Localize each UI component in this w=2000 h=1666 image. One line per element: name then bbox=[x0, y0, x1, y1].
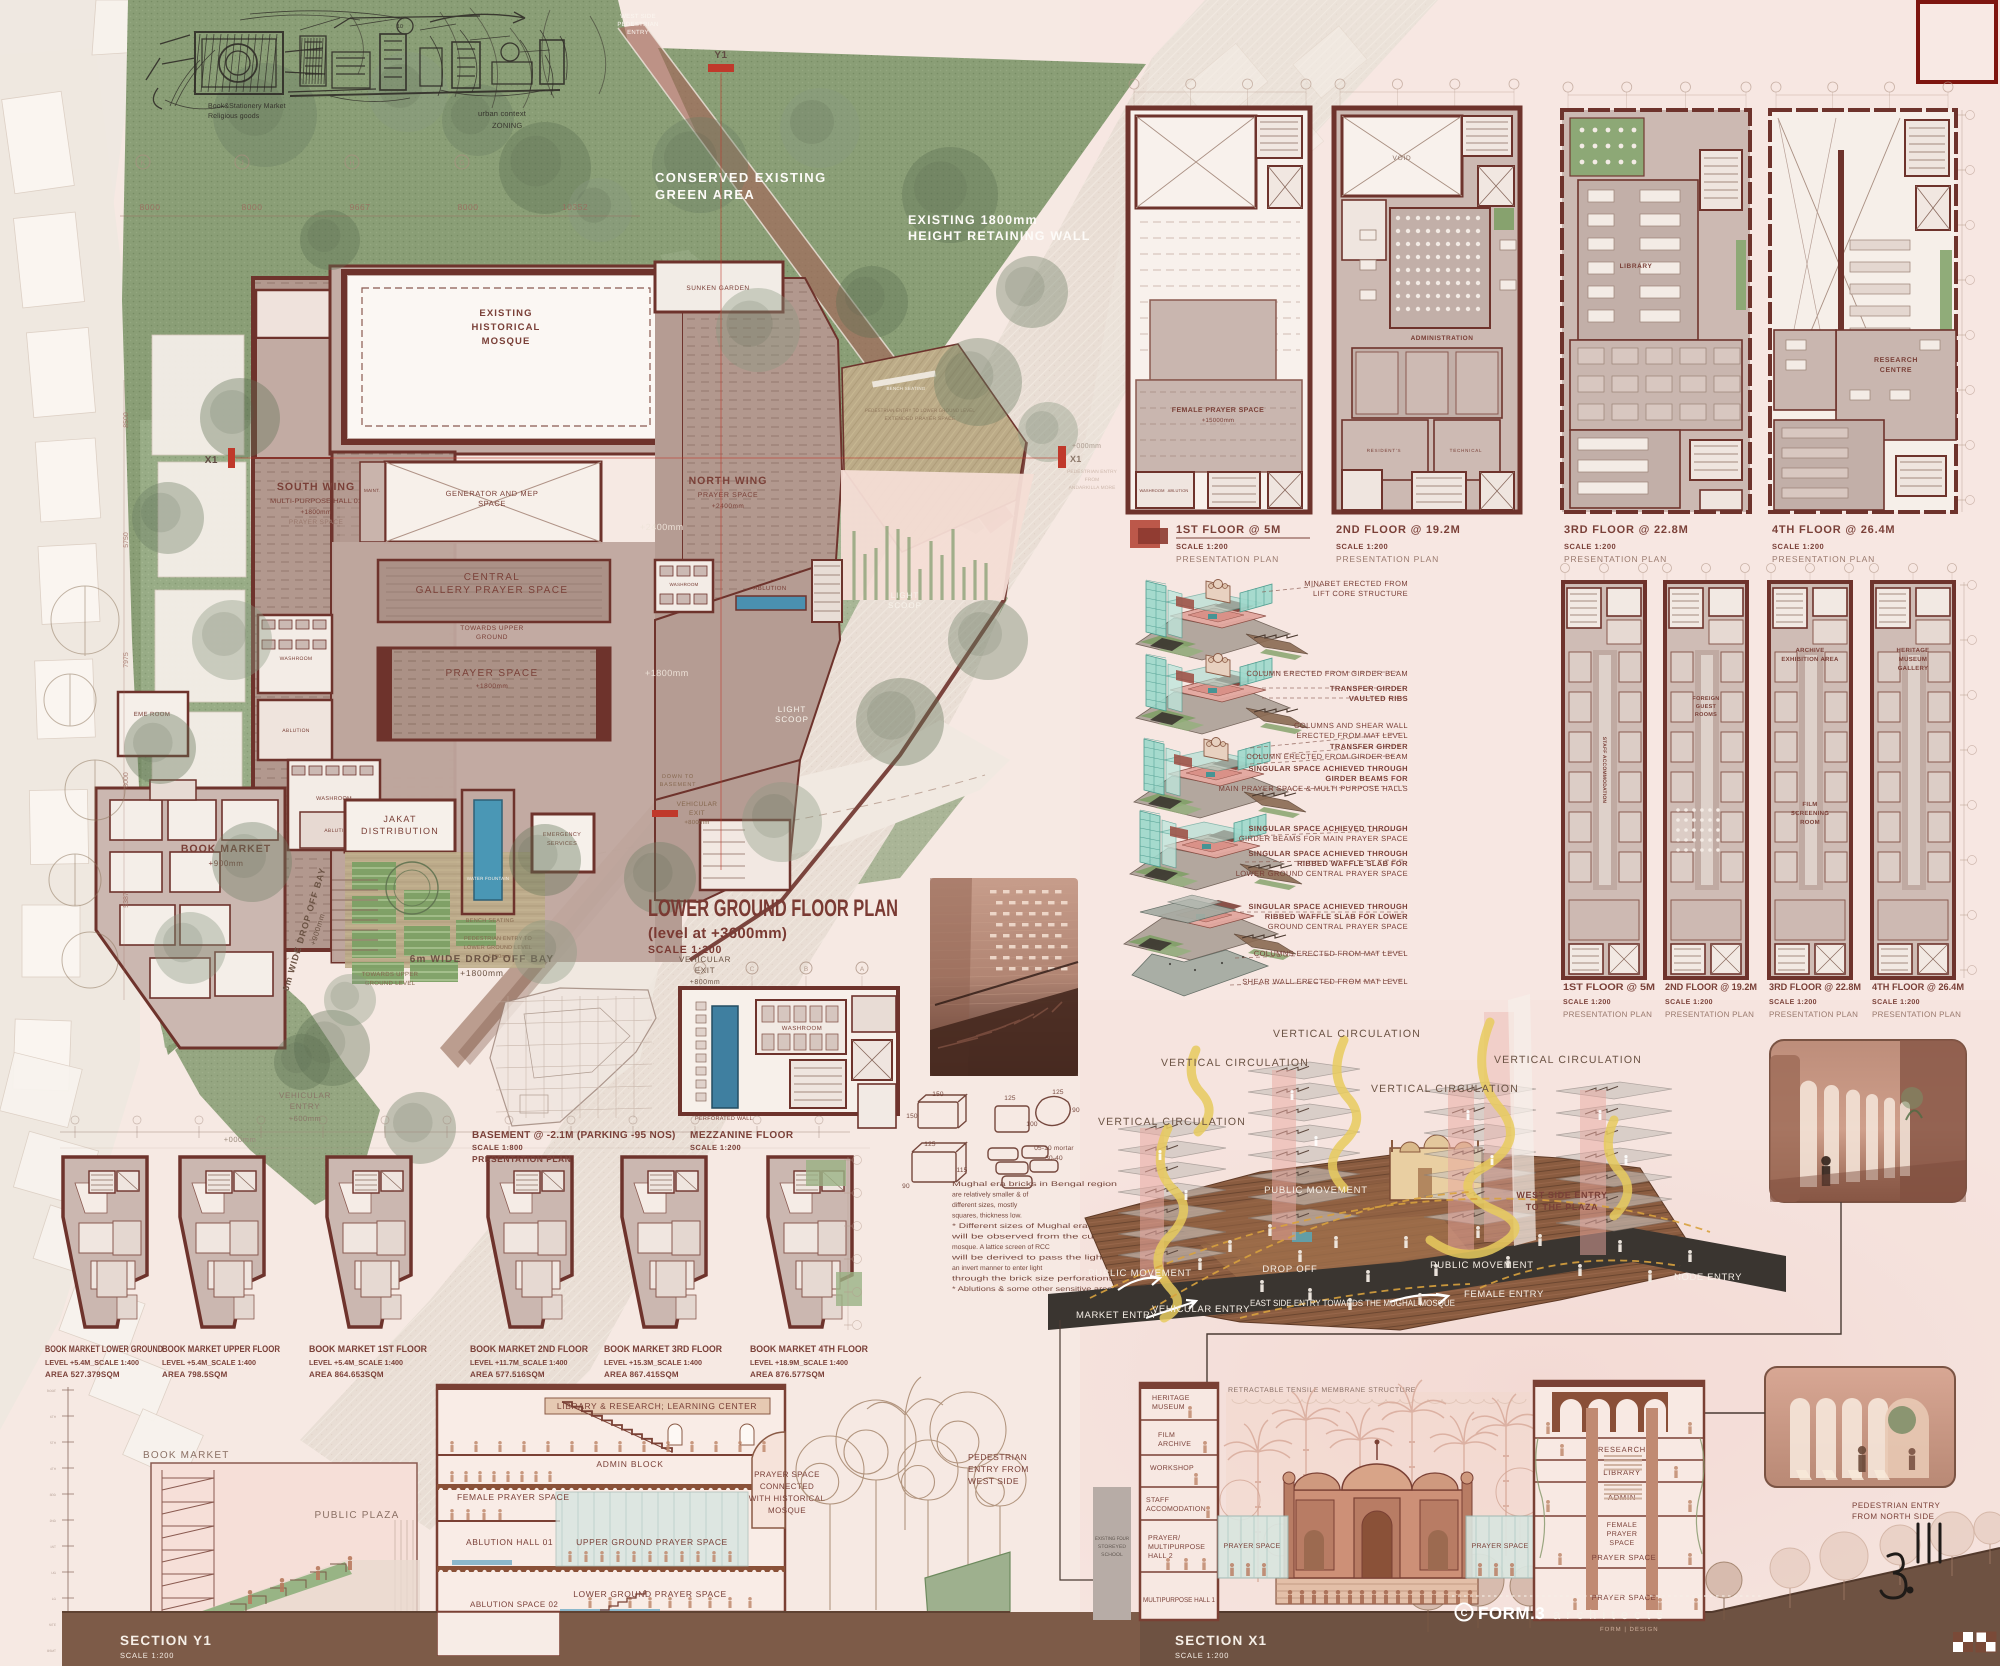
svg-text:Religious goods: Religious goods bbox=[208, 112, 260, 120]
svg-text:FORM.3: FORM.3 bbox=[1478, 1604, 1545, 1623]
svg-text:STOREYED: STOREYED bbox=[1098, 1544, 1127, 1550]
svg-text:COLUMNS AND SHEAR WALL: COLUMNS AND SHEAR WALL bbox=[1294, 721, 1408, 730]
svg-text:GREEN AREA: GREEN AREA bbox=[655, 187, 755, 202]
svg-text:GALLERY PRAYER SPACE: GALLERY PRAYER SPACE bbox=[416, 585, 569, 596]
svg-text:an invert manner to enter ligh: an invert manner to enter light bbox=[952, 1265, 1042, 1272]
svg-text:GROUND LEVEL: GROUND LEVEL bbox=[365, 980, 416, 987]
svg-text:4TH FLOOR @ 26.4M: 4TH FLOOR @ 26.4M bbox=[1772, 524, 1895, 536]
svg-text:PEDESTRIAN ENTRY: PEDESTRIAN ENTRY bbox=[1852, 1501, 1940, 1510]
svg-text:GALLERY: GALLERY bbox=[1898, 665, 1929, 672]
svg-text:WITH HISTORICAL: WITH HISTORICAL bbox=[749, 1494, 826, 1503]
svg-text:PRAYER SPACE: PRAYER SPACE bbox=[289, 519, 344, 526]
svg-text:VOID: VOID bbox=[1392, 155, 1411, 162]
svg-text:FILM: FILM bbox=[1158, 1432, 1175, 1439]
svg-text:05-10 mortar: 05-10 mortar bbox=[1034, 1145, 1074, 1152]
svg-text:4TH FLOOR @ 26.4M: 4TH FLOOR @ 26.4M bbox=[1872, 982, 1964, 993]
svg-text:HISTORICAL: HISTORICAL bbox=[472, 322, 541, 333]
svg-text:NORTH WING: NORTH WING bbox=[689, 475, 768, 487]
svg-text:AREA 876.577SQM: AREA 876.577SQM bbox=[750, 1370, 825, 1379]
svg-text:ROOM: ROOM bbox=[1800, 819, 1820, 826]
svg-text:SCALE 1:200: SCALE 1:200 bbox=[1175, 1651, 1229, 1660]
svg-text:COLUMN ERECTED FROM GIRDER BEA: COLUMN ERECTED FROM GIRDER BEAM bbox=[1246, 752, 1408, 761]
svg-text:TOWARDS UPPER: TOWARDS UPPER bbox=[460, 625, 524, 632]
svg-text:MULTIPURPOSE HALL 1: MULTIPURPOSE HALL 1 bbox=[1143, 1597, 1215, 1604]
svg-text:PRAYER SPACE: PRAYER SPACE bbox=[1223, 1543, 1280, 1550]
svg-text:VERTICAL CIRCULATION: VERTICAL CIRCULATION bbox=[1371, 1083, 1519, 1095]
svg-text:+1800mm: +1800mm bbox=[645, 668, 689, 678]
svg-text:are relatively smaller & of: are relatively smaller & of bbox=[952, 1192, 1028, 1199]
svg-text:LIBRARY & RESEARCH; LEARNING C: LIBRARY & RESEARCH; LEARNING CENTER bbox=[557, 1401, 757, 1411]
svg-text:RESEARCH: RESEARCH bbox=[1874, 357, 1918, 364]
svg-text:ZONING: ZONING bbox=[492, 121, 522, 130]
svg-text:LOWER GROUND CENTRAL PRAYER SP: LOWER GROUND CENTRAL PRAYER SPACE bbox=[1236, 869, 1408, 878]
svg-text:STAFF ACCOMMODATION: STAFF ACCOMMODATION bbox=[1601, 737, 1607, 804]
svg-text:LEVEL +18.9M_SCALE 1:400: LEVEL +18.9M_SCALE 1:400 bbox=[750, 1358, 848, 1367]
svg-text:WORKSHOP: WORKSHOP bbox=[1150, 1465, 1194, 1472]
svg-text:EXISTING 1800mm: EXISTING 1800mm bbox=[908, 213, 1038, 227]
svg-text:+1800mm: +1800mm bbox=[476, 683, 509, 690]
svg-text:PRESENTATION PLAN: PRESENTATION PLAN bbox=[1872, 1010, 1961, 1019]
svg-text:Y1: Y1 bbox=[714, 50, 727, 61]
svg-text:PRESENTATION PLAN: PRESENTATION PLAN bbox=[472, 1154, 571, 1164]
svg-text:SPACE: SPACE bbox=[1609, 1540, 1634, 1547]
svg-text:ABLUTION: ABLUTION bbox=[282, 728, 309, 734]
svg-text:SINGULAR SPACE ACHIEVED THROUG: SINGULAR SPACE ACHIEVED THROUGH bbox=[1249, 902, 1409, 911]
svg-text:PUBLIC MOVEMENT: PUBLIC MOVEMENT bbox=[1430, 1260, 1534, 1271]
svg-text:ABLUTION HALL 01: ABLUTION HALL 01 bbox=[466, 1537, 553, 1547]
svg-text:TO THE PLAZA: TO THE PLAZA bbox=[1526, 1202, 1599, 1212]
svg-text:CONNECTED: CONNECTED bbox=[760, 1482, 814, 1491]
svg-text:PRESENTATION PLAN: PRESENTATION PLAN bbox=[1563, 1010, 1652, 1019]
svg-text:1ST FLOOR @ 5M: 1ST FLOOR @ 5M bbox=[1563, 982, 1655, 993]
svg-text:8000: 8000 bbox=[458, 202, 479, 212]
svg-text:MOSQUE: MOSQUE bbox=[482, 336, 531, 347]
svg-text:SPACE: SPACE bbox=[478, 499, 506, 508]
svg-text:SCALE 1:200: SCALE 1:200 bbox=[690, 1143, 741, 1152]
svg-text:SCALE 1:200: SCALE 1:200 bbox=[648, 944, 722, 956]
svg-text:MEZZANINE FLOOR: MEZZANINE FLOOR bbox=[690, 1130, 794, 1141]
svg-text:LEVEL +11.7M_SCALE 1:400: LEVEL +11.7M_SCALE 1:400 bbox=[470, 1358, 568, 1367]
svg-text:HEIGHT RETAINING WALL: HEIGHT RETAINING WALL bbox=[908, 229, 1091, 243]
svg-text:+2400mm: +2400mm bbox=[640, 522, 684, 532]
svg-text:SCALE 1:200: SCALE 1:200 bbox=[1176, 542, 1228, 551]
svg-text:DROP OFF: DROP OFF bbox=[1262, 1264, 1317, 1275]
svg-text:SCALE 1:200: SCALE 1:200 bbox=[1769, 999, 1817, 1006]
svg-text:RIBBED WAFFLE SLAB FOR LOWER: RIBBED WAFFLE SLAB FOR LOWER bbox=[1265, 912, 1408, 921]
svg-text:ACCOMODATION: ACCOMODATION bbox=[1146, 1506, 1206, 1513]
svg-text:1ST: 1ST bbox=[50, 1545, 56, 1549]
svg-text:SUNKEN GARDEN: SUNKEN GARDEN bbox=[686, 285, 749, 292]
svg-text:GIRDER BEAMS FOR: GIRDER BEAMS FOR bbox=[1325, 774, 1408, 783]
svg-text:DOWN TO: DOWN TO bbox=[662, 774, 694, 780]
svg-text:D: D bbox=[698, 966, 703, 973]
svg-text:Mughal era bricks in Bengal re: Mughal era bricks in Bengal region bbox=[952, 1181, 1117, 1188]
svg-text:PRESENTATION PLAN: PRESENTATION PLAN bbox=[1564, 554, 1667, 564]
svg-text:EXIT: EXIT bbox=[689, 810, 705, 817]
svg-text:STAFF: STAFF bbox=[1146, 1497, 1169, 1504]
svg-text:GROUND CENTRAL PRAYER SPACE: GROUND CENTRAL PRAYER SPACE bbox=[1268, 922, 1408, 931]
svg-text:+000mm: +000mm bbox=[224, 1135, 256, 1144]
svg-text:FEMALE: FEMALE bbox=[1607, 1522, 1637, 1529]
svg-text:6TH: 6TH bbox=[50, 1415, 57, 1419]
svg-text:LEVEL +5.4M_SCALE 1:400: LEVEL +5.4M_SCALE 1:400 bbox=[162, 1358, 256, 1367]
svg-text:BASEMENT: BASEMENT bbox=[660, 782, 697, 788]
svg-text:3RD FLOOR @ 22.8M: 3RD FLOOR @ 22.8M bbox=[1769, 982, 1861, 993]
svg-text:LEVEL +15.3M_SCALE 1:400: LEVEL +15.3M_SCALE 1:400 bbox=[604, 1358, 702, 1367]
svg-text:5TH: 5TH bbox=[50, 1441, 57, 1445]
svg-text:EAST SIDE ENTRY TOWARDS THE MU: EAST SIDE ENTRY TOWARDS THE MUGHAL MOSQU… bbox=[1250, 1298, 1455, 1308]
svg-text:UG: UG bbox=[51, 1571, 56, 1575]
svg-text:WASHROOM: WASHROOM bbox=[280, 656, 313, 662]
svg-text:VERTICAL CIRCULATION: VERTICAL CIRCULATION bbox=[1494, 1054, 1642, 1066]
svg-text:will be derived to pass the li: will be derived to pass the light in bbox=[950, 1255, 1117, 1262]
svg-text:FROM: FROM bbox=[1085, 477, 1100, 483]
svg-text:VEHICULAR: VEHICULAR bbox=[279, 1091, 331, 1100]
svg-text:BSMT: BSMT bbox=[47, 1649, 56, 1653]
svg-text:GROUND: GROUND bbox=[476, 634, 508, 641]
svg-text:BOOK MARKET: BOOK MARKET bbox=[143, 1450, 230, 1461]
svg-text:PERFORATED WALL: PERFORATED WALL bbox=[695, 1116, 753, 1122]
svg-text:RESIDENT'S: RESIDENT'S bbox=[1367, 448, 1402, 453]
svg-text:LOWER GROUND FLOOR PLAN: LOWER GROUND FLOOR PLAN bbox=[648, 895, 898, 922]
svg-text:GIRDER BEAMS FOR MAIN PRAYER S: GIRDER BEAMS FOR MAIN PRAYER SPACE bbox=[1239, 834, 1408, 843]
svg-text:LEVEL +5.4M_SCALE 1:400: LEVEL +5.4M_SCALE 1:400 bbox=[309, 1358, 403, 1367]
svg-text:EXTENDED PRAYER SPACE: EXTENDED PRAYER SPACE bbox=[885, 416, 956, 422]
svg-text:TOWARDS UPPER: TOWARDS UPPER bbox=[362, 971, 419, 978]
svg-text:PUBLIC MOVEMENT: PUBLIC MOVEMENT bbox=[1264, 1185, 1368, 1196]
svg-text:150: 150 bbox=[932, 1091, 944, 1098]
svg-text:COLUMNS ERECTED FROM MAT LEVEL: COLUMNS ERECTED FROM MAT LEVEL bbox=[1254, 949, 1408, 958]
svg-text:LIFT CORE STRUCTURE: LIFT CORE STRUCTURE bbox=[1313, 589, 1408, 598]
svg-text:PRAYER/: PRAYER/ bbox=[1148, 1534, 1180, 1542]
svg-text:AREA 867.415SQM: AREA 867.415SQM bbox=[604, 1370, 679, 1379]
svg-text:SINGULAR SPACE ACHIEVED THROUG: SINGULAR SPACE ACHIEVED THROUGH bbox=[1249, 824, 1409, 833]
svg-text:WEST SIDE ENTRY: WEST SIDE ENTRY bbox=[1516, 1190, 1607, 1200]
svg-text:+000mm: +000mm bbox=[1072, 443, 1101, 450]
svg-text:NODE ENTRY: NODE ENTRY bbox=[1674, 1272, 1742, 1283]
svg-text:FROM NORTH SIDE: FROM NORTH SIDE bbox=[1852, 1512, 1934, 1521]
svg-text:CONSERVED EXISTING: CONSERVED EXISTING bbox=[655, 170, 827, 185]
svg-text:SITE: SITE bbox=[49, 1623, 56, 1627]
svg-text:FORM | DESIGN: FORM | DESIGN bbox=[1600, 1626, 1659, 1633]
svg-text:PRESENTATION PLAN: PRESENTATION PLAN bbox=[1769, 1010, 1858, 1019]
svg-text:ABLUTION: ABLUTION bbox=[753, 585, 786, 592]
svg-text:90: 90 bbox=[1072, 1107, 1080, 1114]
svg-text:LIBRARY: LIBRARY bbox=[1620, 263, 1653, 270]
svg-text:PUBLIC MOVEMENT: PUBLIC MOVEMENT bbox=[1088, 1268, 1192, 1279]
svg-text:WEST SIDE: WEST SIDE bbox=[968, 1476, 1019, 1486]
svg-text:PRESENTATION PLAN: PRESENTATION PLAN bbox=[1665, 1010, 1754, 1019]
svg-text:+1800mm: +1800mm bbox=[300, 509, 331, 516]
svg-text:BOOK MARKET 1ST FLOOR: BOOK MARKET 1ST FLOOR bbox=[309, 1344, 427, 1355]
svg-text:BOOK MARKET 4TH FLOOR: BOOK MARKET 4TH FLOOR bbox=[750, 1344, 868, 1355]
svg-text:TECHNICAL: TECHNICAL bbox=[1450, 448, 1483, 453]
svg-text:SOUTH WING: SOUTH WING bbox=[277, 481, 355, 493]
svg-text:EXISTING: EXISTING bbox=[479, 308, 532, 319]
svg-text:ROOMS: ROOMS bbox=[1695, 712, 1717, 718]
svg-text:30-40: 30-40 bbox=[1045, 1155, 1063, 1162]
svg-text:C: C bbox=[750, 966, 755, 973]
svg-text:+800mm: +800mm bbox=[690, 979, 720, 986]
svg-text:COLUMN ERECTED FROM GIRDER BEA: COLUMN ERECTED FROM GIRDER BEAM bbox=[1246, 669, 1408, 678]
svg-text:10: 10 bbox=[397, 24, 403, 30]
svg-text:GENERATOR AND MEP: GENERATOR AND MEP bbox=[446, 489, 539, 498]
svg-text:3RD: 3RD bbox=[50, 1493, 57, 1497]
svg-text:PRESENTATION PLAN: PRESENTATION PLAN bbox=[1336, 554, 1439, 564]
svg-text:BOOK MARKET 3RD FLOOR: BOOK MARKET 3RD FLOOR bbox=[604, 1344, 722, 1355]
svg-text:CENTRAL: CENTRAL bbox=[464, 572, 520, 583]
svg-text:125: 125 bbox=[924, 1141, 936, 1148]
svg-text:ENTRY: ENTRY bbox=[290, 1102, 320, 1111]
svg-text:AREA 798.5SQM: AREA 798.5SQM bbox=[162, 1370, 228, 1379]
svg-text:LIGHT: LIGHT bbox=[778, 705, 807, 714]
svg-text:FOREIGN: FOREIGN bbox=[1692, 696, 1719, 702]
svg-text:ERECTED FROM MAT LEVEL: ERECTED FROM MAT LEVEL bbox=[1297, 731, 1408, 740]
svg-text:115: 115 bbox=[957, 1167, 968, 1174]
svg-text:MUSEUM: MUSEUM bbox=[1899, 656, 1927, 663]
svg-text:SCALE 1:200: SCALE 1:200 bbox=[1665, 999, 1713, 1006]
svg-text:MUSEUM: MUSEUM bbox=[1152, 1404, 1185, 1411]
svg-text:J: J bbox=[240, 160, 244, 167]
svg-text:DISTRIBUTION: DISTRIBUTION bbox=[361, 826, 439, 836]
svg-text:ENTRY: ENTRY bbox=[627, 29, 649, 36]
svg-text:ADMIN BLOCK: ADMIN BLOCK bbox=[596, 1459, 663, 1469]
svg-text:VEHICULAR: VEHICULAR bbox=[677, 801, 718, 808]
svg-text:BOOK MARKET 2ND FLOOR: BOOK MARKET 2ND FLOOR bbox=[470, 1344, 588, 1355]
svg-text:mosque. A lattice screen of RC: mosque. A lattice screen of RCC bbox=[952, 1244, 1050, 1251]
svg-text:VAULTED RIBS: VAULTED RIBS bbox=[1349, 694, 1408, 703]
svg-text:BOOK MARKET LOWER GROUND: BOOK MARKET LOWER GROUND bbox=[45, 1344, 163, 1355]
svg-text:PEDESTRIAN ENTRY: PEDESTRIAN ENTRY bbox=[1067, 469, 1117, 475]
svg-text:MINARET ERECTED FROM: MINARET ERECTED FROM bbox=[1304, 579, 1408, 588]
svg-text:2ND: 2ND bbox=[50, 1519, 57, 1523]
svg-text:LG: LG bbox=[52, 1597, 57, 1601]
svg-text:+800mm: +800mm bbox=[684, 819, 709, 826]
svg-text:+2400mm: +2400mm bbox=[712, 503, 745, 510]
svg-text:SINGULAR SPACE ACHIEVED THROUG: SINGULAR SPACE ACHIEVED THROUGH bbox=[1249, 849, 1409, 858]
svg-text:WASHROOM: WASHROOM bbox=[782, 1025, 822, 1032]
svg-text:90: 90 bbox=[902, 1183, 910, 1190]
svg-text:SCREENING: SCREENING bbox=[1791, 810, 1829, 817]
svg-text:PRAYER SPACE: PRAYER SPACE bbox=[1471, 1543, 1528, 1550]
svg-text:A: A bbox=[860, 966, 865, 973]
svg-text:TRANSFER GIRDER: TRANSFER GIRDER bbox=[1330, 742, 1408, 751]
svg-text:ANDARKILLA MORE: ANDARKILLA MORE bbox=[1069, 485, 1116, 491]
svg-text:HERITAGE: HERITAGE bbox=[1897, 647, 1930, 654]
svg-text:JAKAT: JAKAT bbox=[383, 814, 416, 824]
svg-text:squares, thickness low.: squares, thickness low. bbox=[952, 1213, 1022, 1220]
svg-text:FILM: FILM bbox=[1802, 801, 1817, 808]
svg-text:1ST FLOOR @ 5M: 1ST FLOOR @ 5M bbox=[1176, 524, 1281, 536]
svg-text:SCOOP: SCOOP bbox=[888, 601, 922, 610]
svg-text:RIBBED WAFFLE SLAB FOR: RIBBED WAFFLE SLAB FOR bbox=[1297, 859, 1408, 868]
svg-text:RESEARCH: RESEARCH bbox=[1598, 1445, 1646, 1454]
svg-text:+600mm: +600mm bbox=[289, 1114, 321, 1123]
svg-text:PRAYER SPACE: PRAYER SPACE bbox=[698, 492, 759, 499]
svg-text:SHEAR WALL ERECTED FROM MAT LE: SHEAR WALL ERECTED FROM MAT LEVEL bbox=[1242, 977, 1408, 986]
svg-text:2ND FLOOR @ 19.2M: 2ND FLOOR @ 19.2M bbox=[1665, 982, 1757, 993]
svg-text:WASHROOM: WASHROOM bbox=[670, 582, 699, 587]
svg-text:4TH: 4TH bbox=[50, 1467, 57, 1471]
svg-text:ABLUTION: ABLUTION bbox=[1168, 488, 1189, 493]
svg-text:BASEMENT @ -2.1M (PARKING -95: BASEMENT @ -2.1M (PARKING -95 NOS) bbox=[472, 1130, 676, 1141]
svg-text:VEHICULAR: VEHICULAR bbox=[679, 955, 731, 964]
svg-text:ABLUTION SPACE 02: ABLUTION SPACE 02 bbox=[470, 1600, 558, 1609]
svg-text:PRAYER SPACE: PRAYER SPACE bbox=[445, 668, 538, 679]
svg-text:X1: X1 bbox=[205, 455, 218, 466]
svg-text:SCHOOL: SCHOOL bbox=[1101, 1552, 1123, 1558]
svg-text:SCALE 1:200: SCALE 1:200 bbox=[1563, 999, 1611, 1006]
svg-text:different sizes, mostly: different sizes, mostly bbox=[952, 1202, 1018, 1209]
svg-text:PRESENTATION PLAN: PRESENTATION PLAN bbox=[1772, 554, 1875, 564]
svg-text:MARKET ENTRY: MARKET ENTRY bbox=[1076, 1310, 1157, 1321]
svg-text:FEMALE ENTRY: FEMALE ENTRY bbox=[1464, 1289, 1544, 1300]
svg-text:ROOF: ROOF bbox=[47, 1389, 56, 1393]
svg-text:AREA 577.516SQM: AREA 577.516SQM bbox=[470, 1370, 545, 1379]
svg-text:PRAYER SPACE: PRAYER SPACE bbox=[1592, 1593, 1656, 1602]
svg-text:MULTI-PURPOSE HALL 01: MULTI-PURPOSE HALL 01 bbox=[270, 498, 362, 505]
svg-text:G: G bbox=[459, 160, 464, 167]
svg-text:ADMINISTRATION: ADMINISTRATION bbox=[1411, 335, 1474, 342]
svg-text:TRANSFER GIRDER: TRANSFER GIRDER bbox=[1330, 684, 1408, 693]
svg-text:SCALE 1:800: SCALE 1:800 bbox=[472, 1143, 523, 1152]
svg-text:SCALE 1:200: SCALE 1:200 bbox=[1564, 542, 1616, 551]
svg-text:VERTICAL CIRCULATION: VERTICAL CIRCULATION bbox=[1161, 1057, 1309, 1069]
svg-text:8000: 8000 bbox=[140, 202, 161, 212]
svg-text:SCALE 1:200: SCALE 1:200 bbox=[1772, 542, 1824, 551]
svg-text:a r c h i t e c t s: a r c h i t e c t s bbox=[1553, 1607, 1664, 1622]
svg-text:PRAYER SPACE: PRAYER SPACE bbox=[1592, 1553, 1656, 1562]
svg-text:K: K bbox=[141, 160, 146, 167]
svg-text:BENCH SEATING: BENCH SEATING bbox=[886, 386, 925, 391]
svg-text:B: B bbox=[804, 966, 808, 973]
svg-text:HERITAGE: HERITAGE bbox=[1152, 1395, 1190, 1402]
svg-text:9667: 9667 bbox=[350, 202, 371, 212]
svg-text:AREA 527.379SQM: AREA 527.379SQM bbox=[45, 1370, 120, 1379]
svg-text:3RD FLOOR @ 22.8M: 3RD FLOOR @ 22.8M bbox=[1564, 524, 1689, 536]
svg-text:PRAYER: PRAYER bbox=[1607, 1531, 1638, 1538]
svg-text:WASHROOM: WASHROOM bbox=[1139, 488, 1164, 493]
svg-text:urban context: urban context bbox=[478, 109, 527, 118]
svg-text:EXISTING FOUR: EXISTING FOUR bbox=[1095, 1536, 1129, 1542]
svg-text:2ND FLOOR @ 19.2M: 2ND FLOOR @ 19.2M bbox=[1336, 524, 1461, 536]
svg-text:+1800mm: +1800mm bbox=[460, 968, 504, 978]
svg-text:CENTRE: CENTRE bbox=[1880, 367, 1912, 374]
svg-text:X1: X1 bbox=[1070, 454, 1082, 464]
svg-text:VEHICULAR ENTRY: VEHICULAR ENTRY bbox=[1152, 1304, 1250, 1315]
svg-text:C: C bbox=[1461, 1608, 1468, 1619]
svg-text:PEDESTRIAN: PEDESTRIAN bbox=[617, 21, 658, 28]
svg-text:8000: 8000 bbox=[242, 202, 263, 212]
svg-text:SCALE 1:200: SCALE 1:200 bbox=[1336, 542, 1388, 551]
svg-text:FEMALE PRAYER SPACE: FEMALE PRAYER SPACE bbox=[1172, 407, 1264, 414]
svg-text:MULTIPURPOSE: MULTIPURPOSE bbox=[1148, 1544, 1205, 1551]
svg-text:BENCH SEATING: BENCH SEATING bbox=[466, 918, 514, 924]
svg-text:SCOOP: SCOOP bbox=[775, 715, 809, 724]
svg-text:MOSQUE: MOSQUE bbox=[768, 1506, 806, 1515]
svg-text:100: 100 bbox=[1026, 1121, 1038, 1128]
svg-text:SECTION Y1: SECTION Y1 bbox=[120, 1633, 212, 1648]
svg-text:SINGULAR SPACE ACHIEVED THROUG: SINGULAR SPACE ACHIEVED THROUGH bbox=[1249, 764, 1409, 773]
svg-text:EXHIBITION AREA: EXHIBITION AREA bbox=[1781, 656, 1839, 663]
svg-text:SCALE 1:200: SCALE 1:200 bbox=[120, 1651, 174, 1660]
svg-text:PRESENTATION PLAN: PRESENTATION PLAN bbox=[1176, 554, 1279, 564]
svg-text:ARCHIVE: ARCHIVE bbox=[1795, 647, 1824, 654]
svg-text:ARCHIVE: ARCHIVE bbox=[1158, 1441, 1191, 1448]
svg-text:MAIN PRAYER SPACE & MULTI PURP: MAIN PRAYER SPACE & MULTI PURPOSE HALLS bbox=[1219, 784, 1408, 793]
svg-text:Book&Stationery Market: Book&Stationery Market bbox=[208, 102, 286, 110]
svg-text:SCALE 1:200: SCALE 1:200 bbox=[1872, 999, 1920, 1006]
svg-text:LIGHT: LIGHT bbox=[891, 591, 920, 600]
svg-text:PEDESTRIAN: PEDESTRIAN bbox=[968, 1452, 1027, 1462]
svg-text:125: 125 bbox=[1052, 1089, 1064, 1096]
svg-text:PUBLIC PLAZA: PUBLIC PLAZA bbox=[315, 1510, 400, 1521]
svg-text:+15000mm: +15000mm bbox=[1202, 417, 1235, 424]
svg-text:GUEST: GUEST bbox=[1696, 704, 1717, 710]
svg-text:WATER FOUNTAIN: WATER FOUNTAIN bbox=[467, 876, 509, 881]
svg-text:FEMALE PRAYER SPACE: FEMALE PRAYER SPACE bbox=[457, 1492, 570, 1502]
svg-text:BOOK MARKET UPPER FLOOR: BOOK MARKET UPPER FLOOR bbox=[162, 1344, 280, 1355]
svg-text:UPPER GROUND PRAYER SPACE: UPPER GROUND PRAYER SPACE bbox=[576, 1537, 728, 1547]
svg-text:WEST SIDE: WEST SIDE bbox=[620, 13, 656, 20]
svg-text:125: 125 bbox=[1004, 1095, 1016, 1102]
svg-text:(level at +3600mm): (level at +3600mm) bbox=[648, 925, 787, 942]
svg-text:H: H bbox=[349, 160, 354, 167]
svg-text:PRAYER SPACE: PRAYER SPACE bbox=[754, 1470, 820, 1479]
svg-text:10352: 10352 bbox=[562, 202, 588, 212]
svg-text:LEVEL +5.4M_SCALE 1:400: LEVEL +5.4M_SCALE 1:400 bbox=[45, 1358, 139, 1367]
svg-text:MAINT.: MAINT. bbox=[364, 488, 380, 493]
svg-text:SECTION X1: SECTION X1 bbox=[1175, 1633, 1267, 1648]
svg-text:VERTICAL CIRCULATION: VERTICAL CIRCULATION bbox=[1098, 1116, 1246, 1128]
svg-text:VERTICAL CIRCULATION: VERTICAL CIRCULATION bbox=[1273, 1028, 1421, 1040]
svg-text:AREA 864.653SQM: AREA 864.653SQM bbox=[309, 1370, 384, 1379]
svg-text:ENTRY FROM: ENTRY FROM bbox=[968, 1464, 1029, 1474]
svg-text:150: 150 bbox=[906, 1113, 918, 1120]
